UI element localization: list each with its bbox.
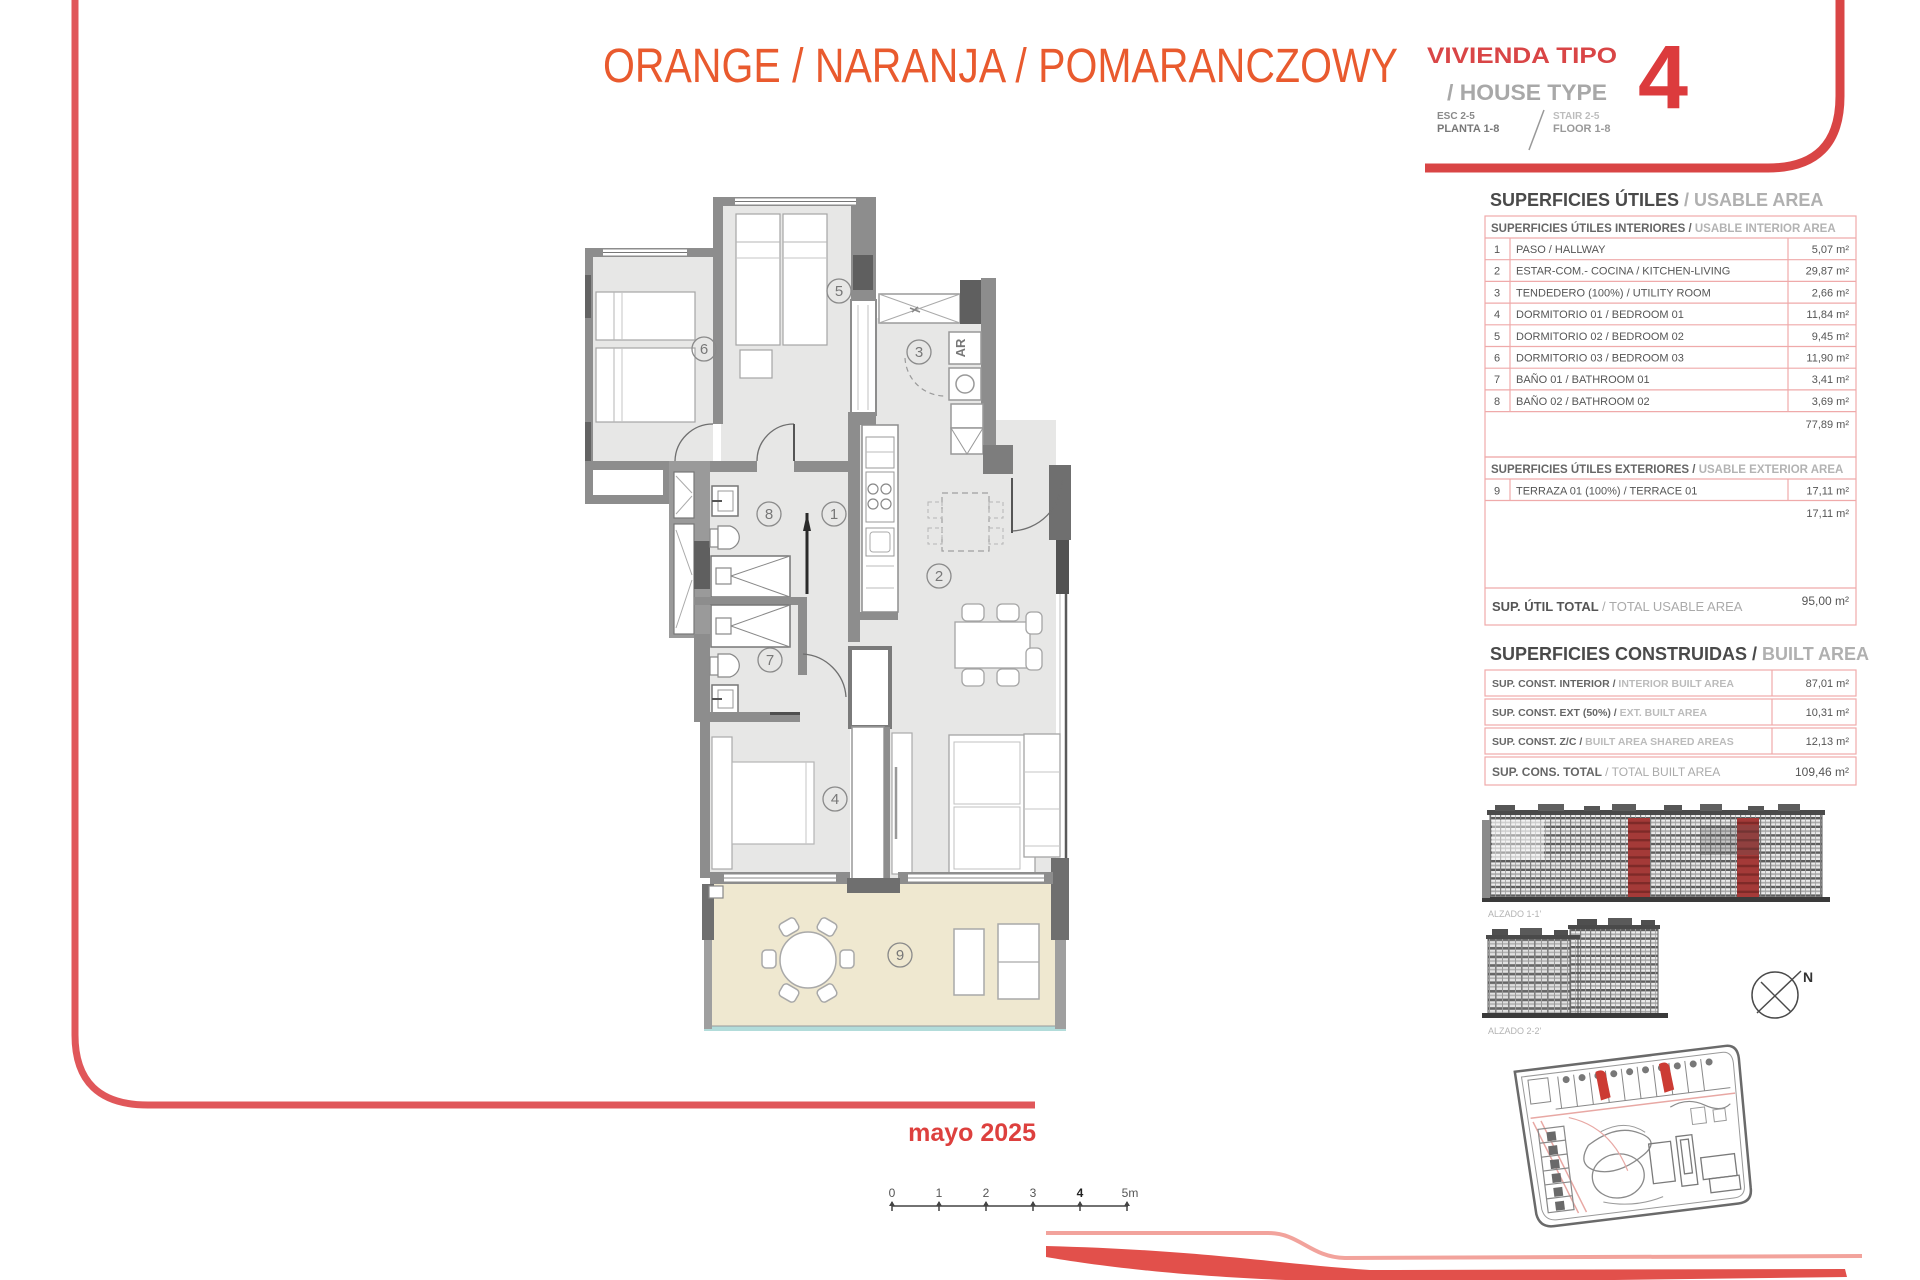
svg-text:SUPERFICIES ÚTILES INTERIORES: SUPERFICIES ÚTILES INTERIORES / USABLE I… bbox=[1491, 222, 1836, 235]
svg-text:DORMITORIO 01 / BEDROOM 01: DORMITORIO 01 / BEDROOM 01 bbox=[1516, 309, 1684, 321]
svg-text:FLOOR 1-8: FLOOR 1-8 bbox=[1553, 123, 1610, 135]
svg-text:2,66 m²: 2,66 m² bbox=[1812, 287, 1850, 299]
svg-text:12,13 m²: 12,13 m² bbox=[1806, 736, 1850, 748]
svg-text:VIVIENDA TIPO: VIVIENDA TIPO bbox=[1427, 43, 1617, 68]
svg-text:0: 0 bbox=[889, 1186, 896, 1200]
svg-text:6: 6 bbox=[1494, 353, 1500, 365]
svg-text:2: 2 bbox=[983, 1186, 990, 1200]
svg-text:29,87 m²: 29,87 m² bbox=[1806, 266, 1850, 278]
svg-text:mayo 2025: mayo 2025 bbox=[908, 1119, 1036, 1147]
svg-text:PASO / HALLWAY: PASO / HALLWAY bbox=[1516, 244, 1606, 256]
svg-text:TERRAZA 01 (100%) / TERRACE 01: TERRAZA 01 (100%) / TERRACE 01 bbox=[1516, 486, 1697, 498]
svg-text:17,11 m²: 17,11 m² bbox=[1806, 508, 1849, 520]
svg-text:1: 1 bbox=[830, 506, 838, 523]
svg-text:AR: AR bbox=[953, 338, 968, 357]
svg-text:87,01 m²: 87,01 m² bbox=[1806, 678, 1850, 690]
svg-text:8: 8 bbox=[1494, 396, 1500, 408]
svg-text:PLANTA 1-8: PLANTA 1-8 bbox=[1437, 123, 1499, 135]
svg-text:TENDEDERO (100%) / UTILITY ROO: TENDEDERO (100%) / UTILITY ROOM bbox=[1516, 287, 1711, 299]
svg-text:77,89 m²: 77,89 m² bbox=[1806, 419, 1850, 431]
svg-text:SUP. CONST. INTERIOR / INTERIO: SUP. CONST. INTERIOR / INTERIOR BUILT AR… bbox=[1492, 678, 1734, 690]
svg-text:5: 5 bbox=[1494, 331, 1500, 343]
svg-text:4: 4 bbox=[831, 791, 839, 808]
svg-text:DORMITORIO 03 / BEDROOM 03: DORMITORIO 03 / BEDROOM 03 bbox=[1516, 353, 1684, 365]
svg-text:STAIR 2-5: STAIR 2-5 bbox=[1553, 111, 1600, 122]
svg-text:95,00 m²: 95,00 m² bbox=[1802, 594, 1849, 608]
svg-text:DORMITORIO 02 / BEDROOM 02: DORMITORIO 02 / BEDROOM 02 bbox=[1516, 331, 1684, 343]
svg-text:6: 6 bbox=[700, 341, 708, 358]
svg-text:SUP. ÚTIL TOTAL / TOTAL USABLE: SUP. ÚTIL TOTAL / TOTAL USABLE AREA bbox=[1492, 599, 1743, 614]
svg-text:5: 5 bbox=[835, 283, 843, 300]
svg-text:5m: 5m bbox=[1122, 1186, 1139, 1200]
svg-text:5,07 m²: 5,07 m² bbox=[1812, 244, 1850, 256]
svg-text:10,31 m²: 10,31 m² bbox=[1806, 707, 1850, 719]
svg-text:3: 3 bbox=[1030, 1186, 1037, 1200]
svg-text:SUP. CONST. EXT (50%) / EXT. B: SUP. CONST. EXT (50%) / EXT. BUILT AREA bbox=[1492, 707, 1708, 719]
svg-text:2: 2 bbox=[935, 568, 943, 585]
svg-text:109,46 m²: 109,46 m² bbox=[1795, 765, 1849, 779]
svg-text:11,84 m²: 11,84 m² bbox=[1806, 309, 1849, 321]
svg-text:ALZADO 1-1': ALZADO 1-1' bbox=[1488, 909, 1542, 919]
svg-text:SUP. CONS. TOTAL / TOTAL BUILT: SUP. CONS. TOTAL / TOTAL BUILT AREA bbox=[1492, 765, 1720, 779]
svg-text:SUP. CONST. Z/C / BUILT AREA S: SUP. CONST. Z/C / BUILT AREA SHARED AREA… bbox=[1492, 736, 1734, 748]
svg-text:8: 8 bbox=[765, 506, 773, 523]
svg-text:9: 9 bbox=[896, 947, 904, 964]
svg-text:3,69 m²: 3,69 m² bbox=[1812, 396, 1850, 408]
svg-text:17,11 m²: 17,11 m² bbox=[1806, 486, 1849, 498]
svg-text:4: 4 bbox=[1638, 28, 1688, 128]
svg-text:/ HOUSE TYPE: / HOUSE TYPE bbox=[1447, 80, 1607, 105]
svg-text:SUPERFICIES ÚTILES / USABLE A: SUPERFICIES ÚTILES / USABLE AREA bbox=[1490, 189, 1823, 210]
svg-text:3,41 m²: 3,41 m² bbox=[1812, 374, 1850, 386]
svg-text:11,90 m²: 11,90 m² bbox=[1806, 353, 1849, 365]
svg-text:ESC 2-5: ESC 2-5 bbox=[1437, 111, 1475, 122]
svg-text:3: 3 bbox=[915, 344, 923, 361]
svg-text:SUPERFICIES CONSTRUIDAS / BUIL: SUPERFICIES CONSTRUIDAS / BUILT AREA bbox=[1490, 644, 1869, 664]
svg-text:9: 9 bbox=[1494, 486, 1500, 498]
svg-text:ALZADO 2-2': ALZADO 2-2' bbox=[1488, 1026, 1542, 1036]
svg-text:2: 2 bbox=[1494, 266, 1500, 278]
svg-text:1: 1 bbox=[1494, 244, 1500, 256]
svg-text:BAÑO 02 / BATHROOM 02: BAÑO 02 / BATHROOM 02 bbox=[1516, 395, 1650, 408]
svg-text:4: 4 bbox=[1494, 309, 1500, 321]
svg-text:9,45 m²: 9,45 m² bbox=[1812, 331, 1850, 343]
svg-text:7: 7 bbox=[766, 652, 774, 669]
svg-text:3: 3 bbox=[1494, 287, 1500, 299]
svg-text:4: 4 bbox=[1077, 1186, 1084, 1200]
svg-text:BAÑO 01 / BATHROOM 01: BAÑO 01 / BATHROOM 01 bbox=[1516, 373, 1650, 386]
svg-text:1: 1 bbox=[936, 1186, 943, 1200]
svg-text:7: 7 bbox=[1494, 374, 1500, 386]
svg-text:N: N bbox=[1803, 969, 1813, 985]
svg-text:ORANGE / NARANJA / POMARANCZOW: ORANGE / NARANJA / POMARANCZOWY bbox=[603, 40, 1398, 93]
svg-text:ESTAR-COM.- COCINA / KITCHEN-L: ESTAR-COM.- COCINA / KITCHEN-LIVING bbox=[1516, 266, 1730, 278]
svg-text:SUPERFICIES ÚTILES EXTERIORES: SUPERFICIES ÚTILES EXTERIORES / USABLE E… bbox=[1491, 463, 1843, 476]
